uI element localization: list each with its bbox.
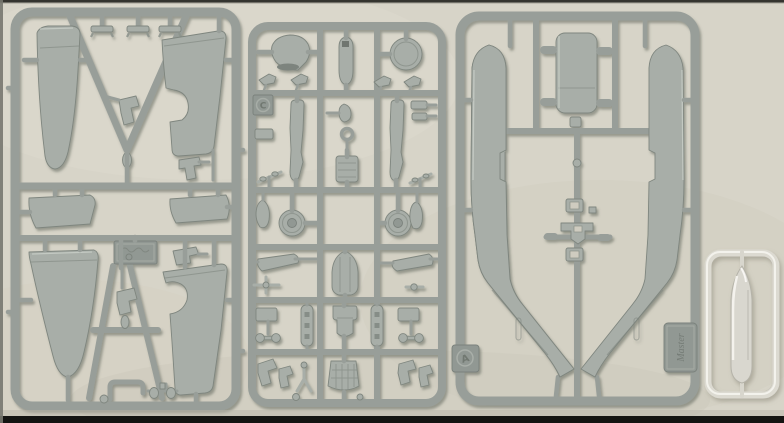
photo-canvas: C <box>0 0 784 423</box>
letter-c: C <box>260 102 267 112</box>
ring-fitting-lower <box>566 248 583 261</box>
left-edge-strip <box>0 0 3 423</box>
bottom-edge-strip <box>0 416 784 423</box>
sprue-photo: C <box>0 0 784 423</box>
riveted-strip-right <box>371 300 383 352</box>
brand-script: Master <box>676 333 687 362</box>
riveted-strip-left <box>301 300 313 352</box>
top-edge-strip <box>0 0 784 3</box>
brand-plate-master: Master <box>664 323 697 372</box>
gate-letter-tab-c: C <box>253 95 273 115</box>
brand-plate-embossed <box>114 237 157 268</box>
gate-letter-tab-a: A <box>452 345 479 372</box>
